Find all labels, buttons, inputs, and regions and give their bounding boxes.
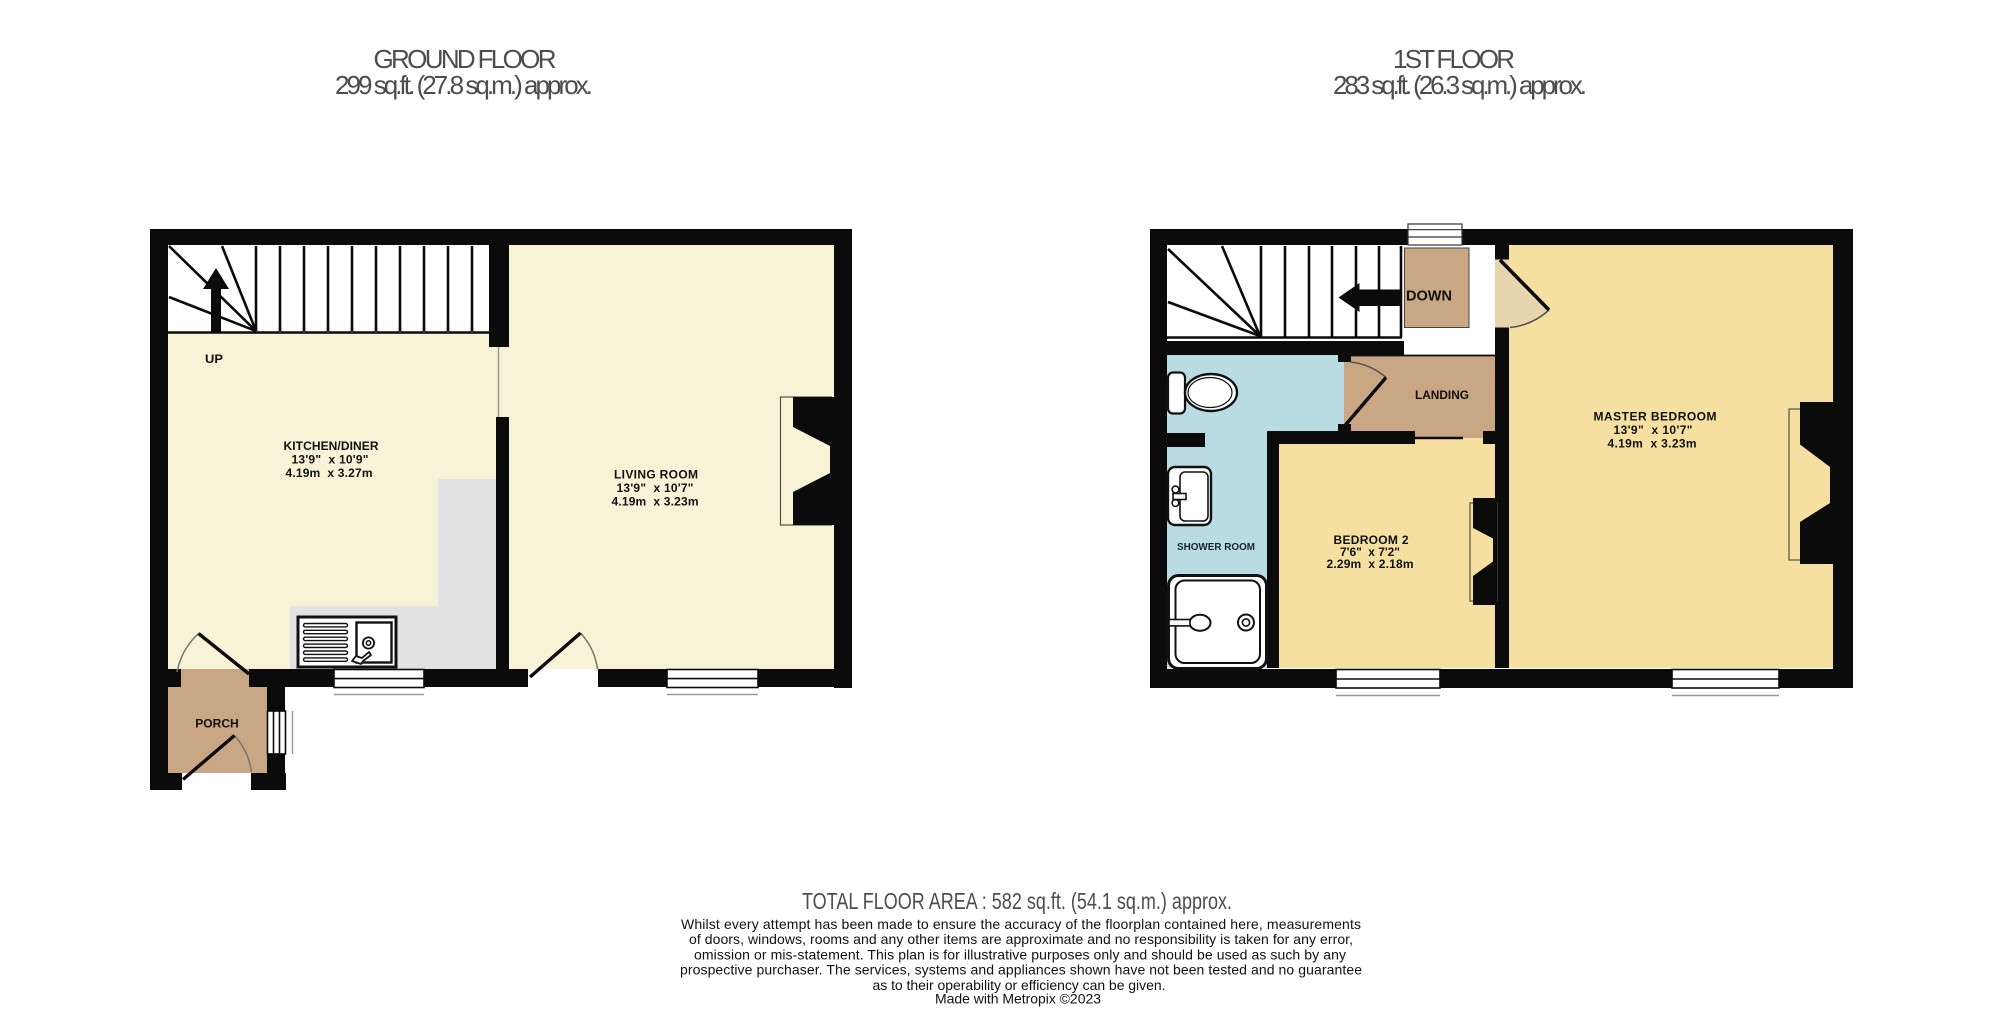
svg-text:KITCHEN/DINER: KITCHEN/DINER <box>284 439 379 453</box>
svg-text:DOWN: DOWN <box>1406 288 1452 305</box>
svg-text:13'9" x 10'7": 13'9" x 10'7" <box>617 481 694 495</box>
svg-text:4.19m x 3.23m: 4.19m x 3.23m <box>1608 437 1697 451</box>
svg-text:13'9" x 10'9": 13'9" x 10'9" <box>292 453 369 467</box>
svg-text:2.29m x 2.18m: 2.29m x 2.18m <box>1327 557 1414 571</box>
svg-text:UP: UP <box>205 352 223 366</box>
svg-text:SHOWER ROOM: SHOWER ROOM <box>1177 542 1255 553</box>
svg-text:Made with Metropix ©2023: Made with Metropix ©2023 <box>935 991 1101 1007</box>
svg-text:LIVING ROOM: LIVING ROOM <box>614 468 698 482</box>
svg-text:prospective purchaser. The ser: prospective purchaser. The services, sys… <box>680 962 1362 978</box>
svg-text:LANDING: LANDING <box>1415 388 1469 402</box>
svg-text:MASTER BEDROOM: MASTER BEDROOM <box>1594 410 1717 424</box>
svg-text:TOTAL FLOOR AREA : 582 sq.ft.: TOTAL FLOOR AREA : 582 sq.ft. (54.1 sq.m… <box>802 888 1232 914</box>
svg-text:4.19m x 3.23m: 4.19m x 3.23m <box>612 495 699 509</box>
svg-text:Whilst every attempt has been: Whilst every attempt has been made to en… <box>681 916 1361 932</box>
svg-text:13'9" x 10'7": 13'9" x 10'7" <box>1614 423 1693 437</box>
svg-text:of doors, windows, rooms and a: of doors, windows, rooms and any other i… <box>689 931 1353 947</box>
svg-text:PORCH: PORCH <box>195 717 239 731</box>
svg-text:283 sq.ft. (26.3 sq.m.) approx: 283 sq.ft. (26.3 sq.m.) approx. <box>1333 70 1587 100</box>
svg-text:4.19m x 3.27m: 4.19m x 3.27m <box>286 466 373 480</box>
svg-text:299 sq.ft. (27.8 sq.m.) approx: 299 sq.ft. (27.8 sq.m.) approx. <box>335 70 593 100</box>
svg-text:omission or mis-statement. Thi: omission or mis-statement. This plan is … <box>694 946 1346 962</box>
